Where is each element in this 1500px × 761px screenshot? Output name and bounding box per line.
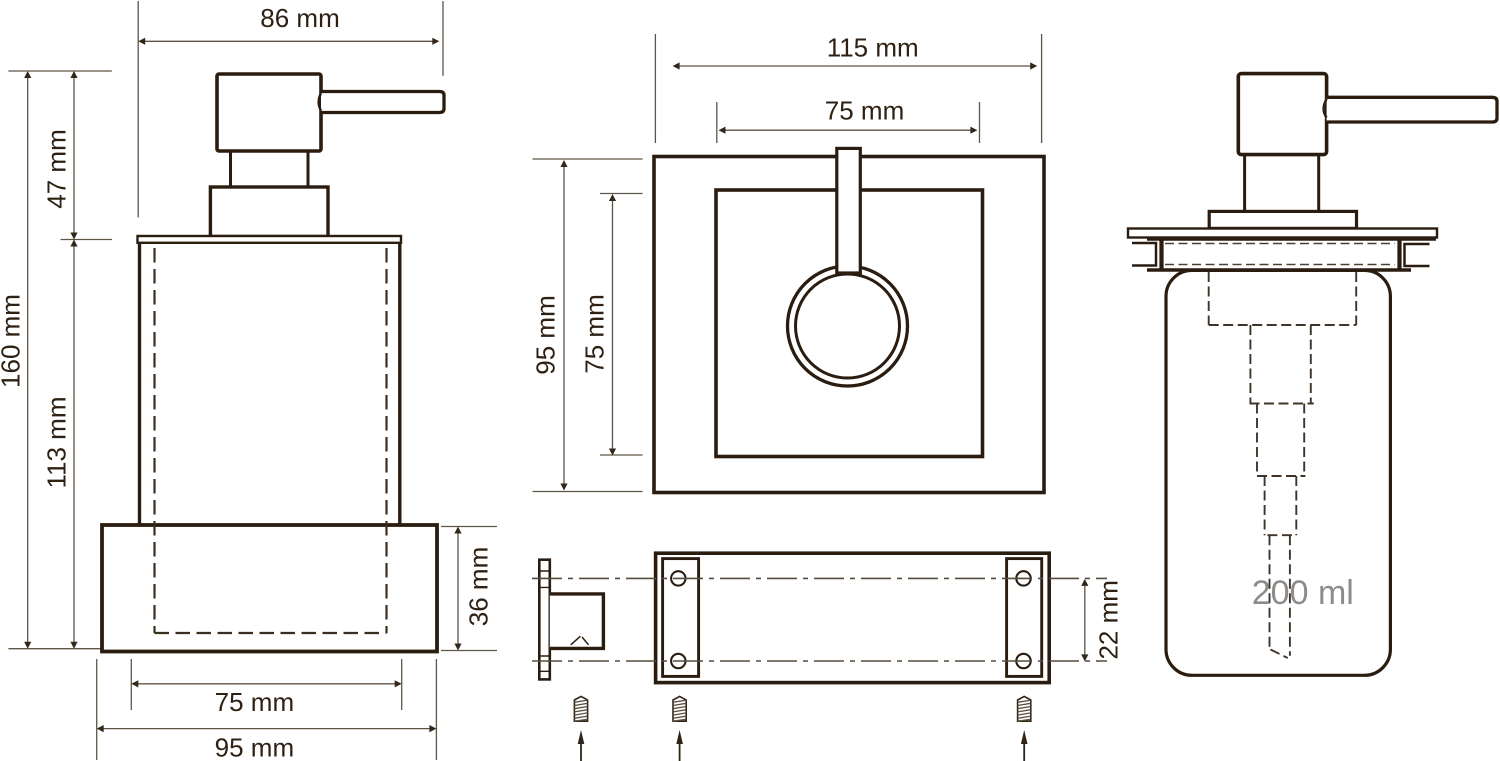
- svg-text:36 mm: 36 mm: [464, 547, 494, 626]
- svg-text:22 mm: 22 mm: [1094, 580, 1124, 659]
- svg-text:86 mm: 86 mm: [260, 3, 339, 33]
- svg-text:115 mm: 115 mm: [827, 32, 919, 62]
- svg-text:75 mm: 75 mm: [825, 96, 904, 126]
- svg-text:75 mm: 75 mm: [215, 687, 294, 717]
- svg-text:95 mm: 95 mm: [531, 295, 561, 374]
- svg-text:95 mm: 95 mm: [215, 733, 294, 761]
- svg-text:200 ml: 200 ml: [1252, 574, 1354, 612]
- svg-text:160 mm: 160 mm: [0, 294, 26, 388]
- svg-text:75 mm: 75 mm: [580, 294, 610, 373]
- svg-text:113 mm: 113 mm: [42, 397, 72, 489]
- svg-text:47 mm: 47 mm: [42, 129, 72, 208]
